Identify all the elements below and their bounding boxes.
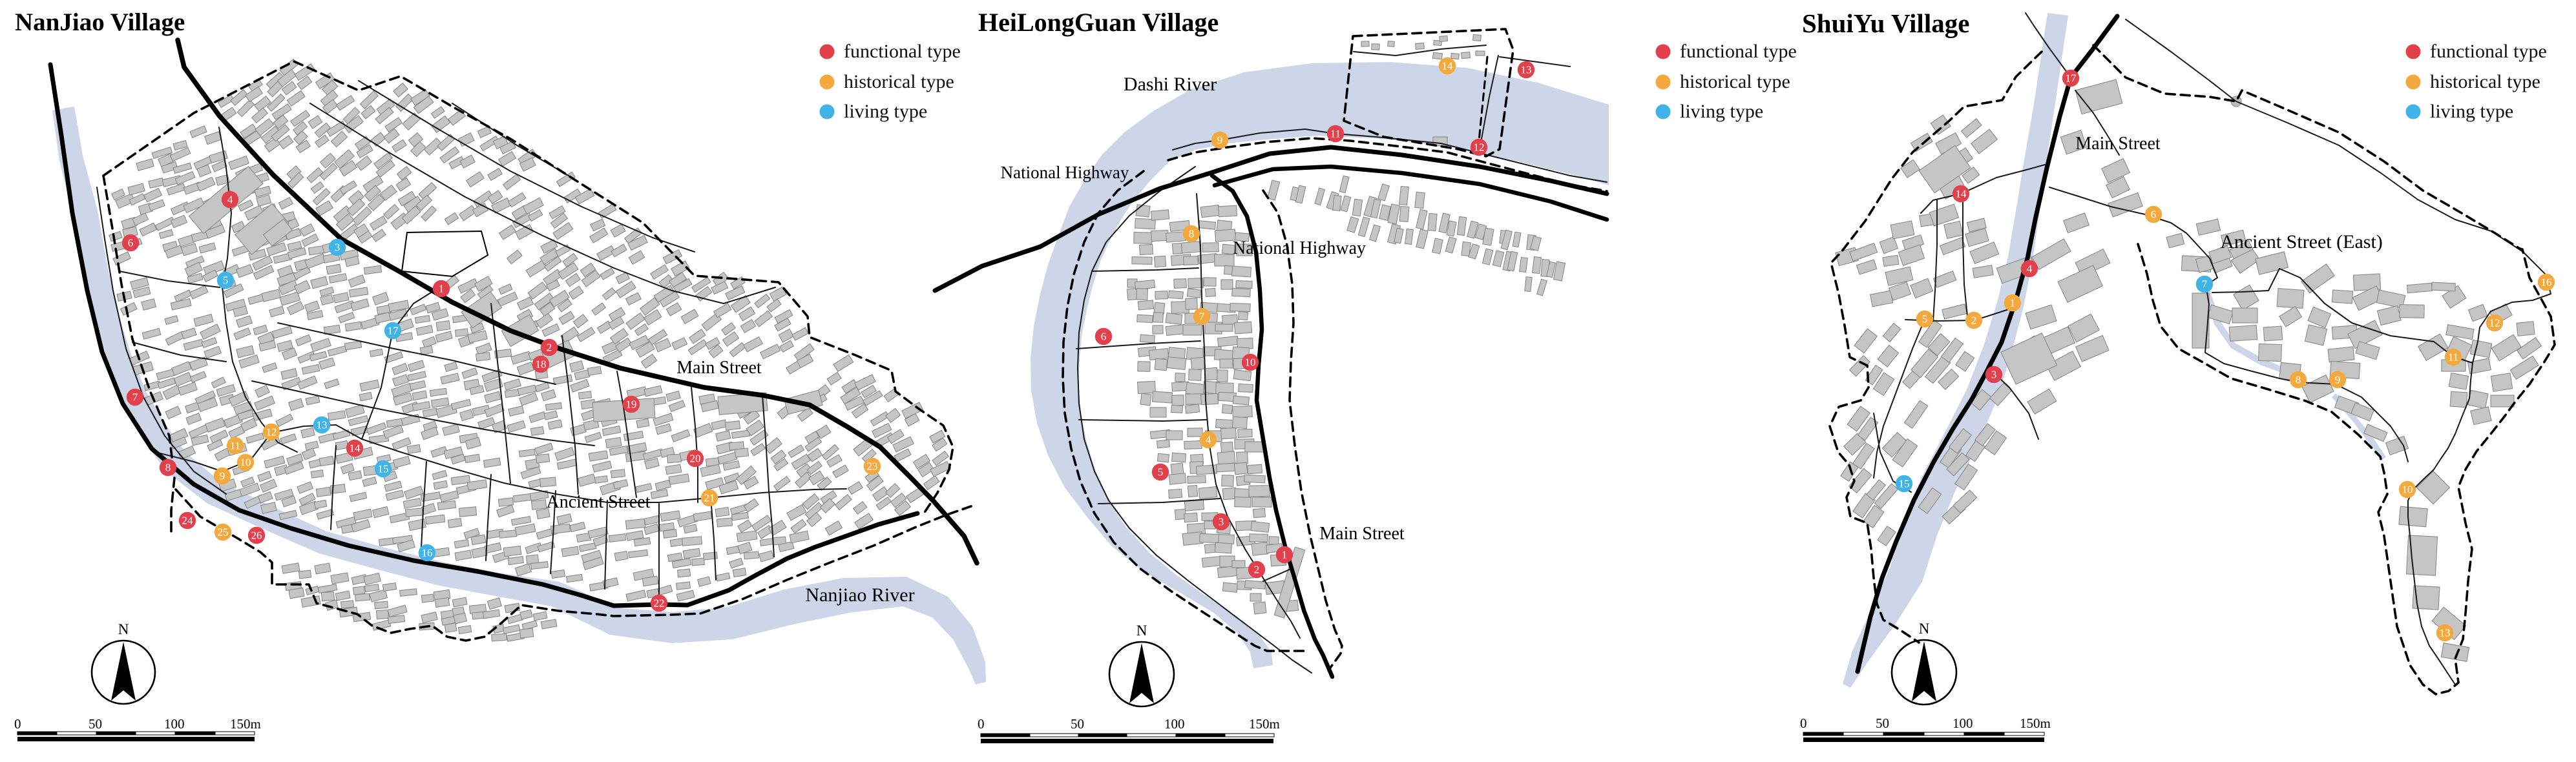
- svg-text:historical type: historical type: [2430, 71, 2540, 92]
- svg-text:1: 1: [2010, 297, 2016, 309]
- svg-text:100: 100: [1164, 716, 1185, 732]
- svg-text:11: 11: [230, 440, 240, 452]
- svg-text:6: 6: [1101, 331, 1107, 343]
- svg-text:100: 100: [164, 716, 185, 732]
- svg-text:8: 8: [1189, 228, 1195, 240]
- svg-text:16: 16: [2541, 276, 2552, 289]
- svg-text:0: 0: [978, 716, 985, 732]
- svg-text:0: 0: [14, 716, 21, 732]
- svg-text:Main Street: Main Street: [1319, 524, 1405, 544]
- svg-text:13: 13: [317, 419, 328, 431]
- svg-text:5: 5: [223, 274, 229, 287]
- svg-text:10: 10: [1245, 356, 1256, 369]
- svg-text:7: 7: [132, 391, 138, 404]
- svg-text:2: 2: [1254, 564, 1260, 576]
- svg-text:9: 9: [2335, 374, 2341, 386]
- svg-text:3: 3: [335, 242, 340, 254]
- svg-text:4: 4: [227, 194, 233, 206]
- svg-text:14: 14: [350, 442, 361, 455]
- svg-text:50: 50: [1071, 716, 1084, 732]
- svg-text:Ancient Street: Ancient Street: [547, 492, 651, 512]
- svg-text:50: 50: [1876, 716, 1889, 731]
- svg-text:1: 1: [1282, 549, 1288, 561]
- svg-text:7: 7: [2202, 278, 2208, 291]
- svg-text:11: 11: [1330, 128, 1341, 140]
- svg-text:NanJiao Village: NanJiao Village: [15, 8, 185, 36]
- svg-text:11: 11: [2448, 351, 2458, 364]
- svg-text:7: 7: [1199, 311, 1205, 323]
- svg-text:N: N: [118, 621, 129, 637]
- svg-text:6: 6: [2151, 209, 2157, 221]
- svg-text:HeiLongGuan Village: HeiLongGuan Village: [978, 8, 1219, 37]
- svg-text:N: N: [1919, 621, 1930, 637]
- svg-text:functional type: functional type: [2430, 41, 2547, 62]
- svg-text:Main Street: Main Street: [2075, 134, 2161, 154]
- svg-text:9: 9: [220, 470, 225, 482]
- svg-text:9: 9: [1217, 134, 1223, 147]
- svg-text:historical type: historical type: [844, 71, 954, 92]
- svg-text:2: 2: [547, 342, 552, 354]
- svg-text:14: 14: [1956, 188, 1967, 200]
- svg-text:12: 12: [1474, 141, 1485, 154]
- svg-text:functional type: functional type: [844, 41, 961, 62]
- svg-text:living type: living type: [1680, 101, 1763, 122]
- svg-text:10: 10: [2402, 484, 2413, 496]
- svg-text:13: 13: [1521, 64, 1532, 76]
- svg-text:4: 4: [1206, 434, 1211, 446]
- svg-text:14: 14: [1442, 60, 1454, 72]
- svg-text:living type: living type: [2430, 101, 2513, 122]
- svg-text:13: 13: [2440, 627, 2451, 639]
- svg-text:100: 100: [1953, 716, 1973, 731]
- svg-text:150m: 150m: [230, 716, 261, 732]
- svg-text:Dashi River: Dashi River: [1124, 74, 1217, 95]
- svg-text:17: 17: [2066, 72, 2077, 85]
- svg-text:150m: 150m: [1249, 716, 1280, 732]
- svg-text:16: 16: [422, 547, 433, 559]
- svg-text:Ancient Street (East): Ancient Street (East): [2220, 231, 2383, 252]
- svg-text:15: 15: [1899, 478, 1910, 490]
- svg-text:National Highway: National Highway: [1001, 163, 1129, 182]
- svg-text:19: 19: [626, 398, 637, 411]
- svg-text:3: 3: [1991, 369, 1997, 381]
- svg-text:150m: 150m: [2020, 716, 2051, 731]
- svg-text:Main Street: Main Street: [676, 358, 762, 378]
- svg-text:12: 12: [2489, 317, 2500, 329]
- svg-text:23: 23: [867, 460, 878, 473]
- svg-text:8: 8: [165, 462, 171, 474]
- svg-text:ShuiYu Village: ShuiYu Village: [1802, 8, 1969, 38]
- svg-text:20: 20: [690, 453, 701, 465]
- svg-text:22: 22: [654, 597, 665, 610]
- svg-text:26: 26: [251, 530, 262, 542]
- svg-text:21: 21: [704, 492, 715, 504]
- svg-text:17: 17: [388, 325, 399, 337]
- svg-text:25: 25: [218, 526, 229, 539]
- svg-text:functional type: functional type: [1680, 41, 1797, 62]
- svg-text:3: 3: [1219, 516, 1224, 528]
- svg-text:National Highway: National Highway: [1233, 238, 1366, 258]
- svg-text:15: 15: [378, 463, 389, 475]
- svg-text:5: 5: [1158, 466, 1164, 479]
- svg-text:10: 10: [240, 457, 251, 469]
- svg-text:2: 2: [1971, 314, 1977, 327]
- svg-text:Nanjiao River: Nanjiao River: [805, 584, 914, 606]
- svg-text:18: 18: [536, 358, 547, 371]
- svg-text:living type: living type: [844, 101, 927, 122]
- svg-text:50: 50: [89, 716, 102, 732]
- svg-text:24: 24: [182, 515, 194, 527]
- svg-text:N: N: [1136, 623, 1147, 639]
- svg-text:12: 12: [266, 426, 277, 438]
- svg-text:historical type: historical type: [1680, 71, 1790, 92]
- svg-text:1: 1: [439, 283, 445, 295]
- svg-text:4: 4: [2027, 263, 2033, 275]
- svg-text:6: 6: [128, 237, 134, 249]
- svg-text:8: 8: [2296, 374, 2301, 386]
- svg-text:0: 0: [1800, 716, 1807, 731]
- svg-text:5: 5: [1922, 313, 1928, 325]
